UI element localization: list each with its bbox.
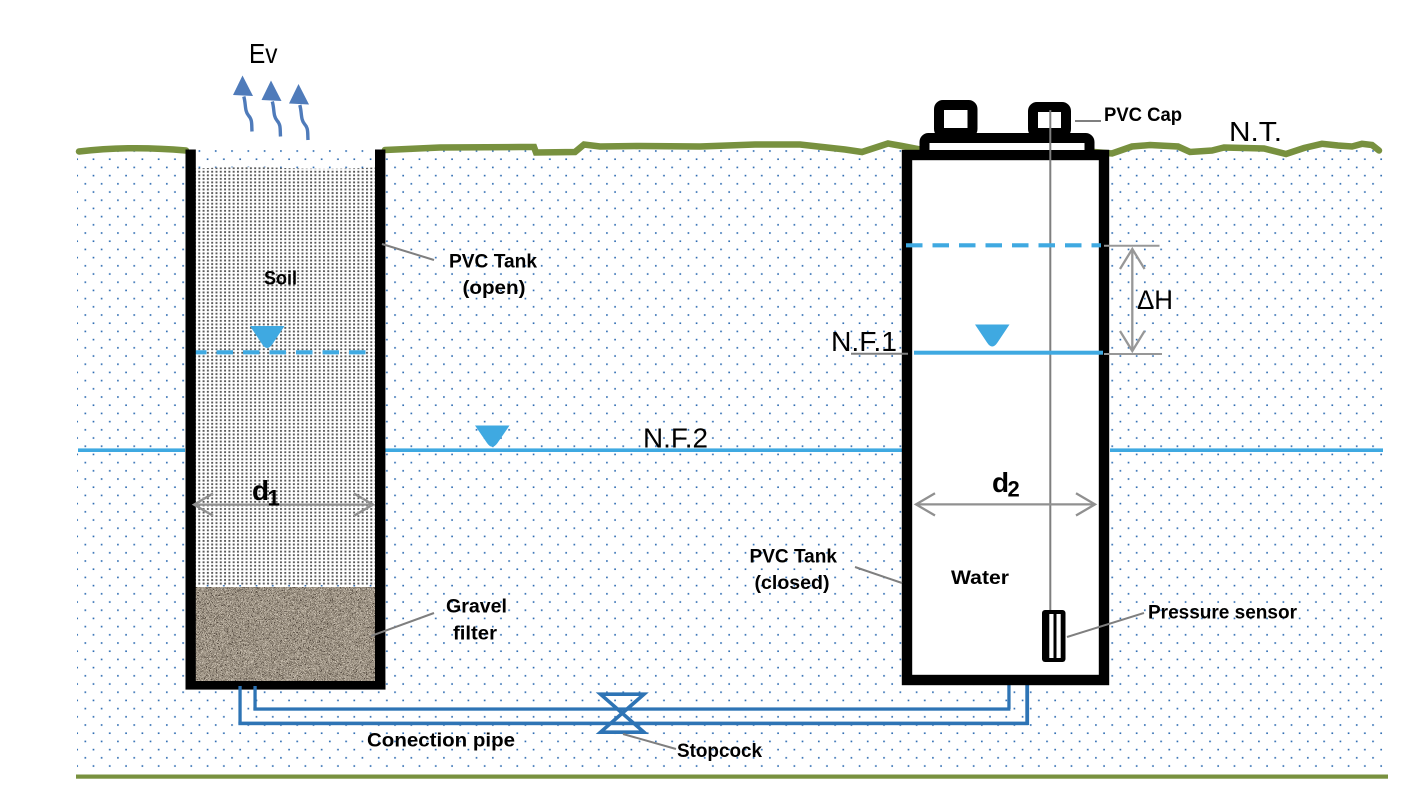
svg-text:PVC Cap: PVC Cap (1104, 105, 1182, 126)
svg-text:(open): (open) (463, 278, 526, 299)
svg-text:ΔH: ΔH (1137, 285, 1173, 315)
svg-text:N.F.2: N.F.2 (643, 423, 708, 454)
svg-text:filter: filter (453, 624, 498, 645)
svg-text:2: 2 (1008, 477, 1020, 502)
svg-text:PVC Tank: PVC Tank (449, 252, 537, 273)
svg-text:Water: Water (951, 568, 1010, 589)
svg-text:PVC Tank: PVC Tank (750, 547, 838, 568)
svg-text:Ev: Ev (249, 38, 278, 69)
svg-text:Conection pipe: Conection pipe (367, 731, 515, 752)
svg-text:N.F.1: N.F.1 (831, 326, 897, 357)
svg-text:1: 1 (268, 486, 280, 511)
svg-text:N.T.: N.T. (1229, 116, 1282, 147)
svg-text:Gravel: Gravel (446, 597, 507, 618)
svg-text:Stopcock: Stopcock (677, 741, 762, 762)
svg-text:Pressure sensor: Pressure sensor (1148, 603, 1298, 624)
svg-text:Soil: Soil (264, 269, 297, 290)
svg-text:(closed): (closed) (755, 573, 830, 594)
